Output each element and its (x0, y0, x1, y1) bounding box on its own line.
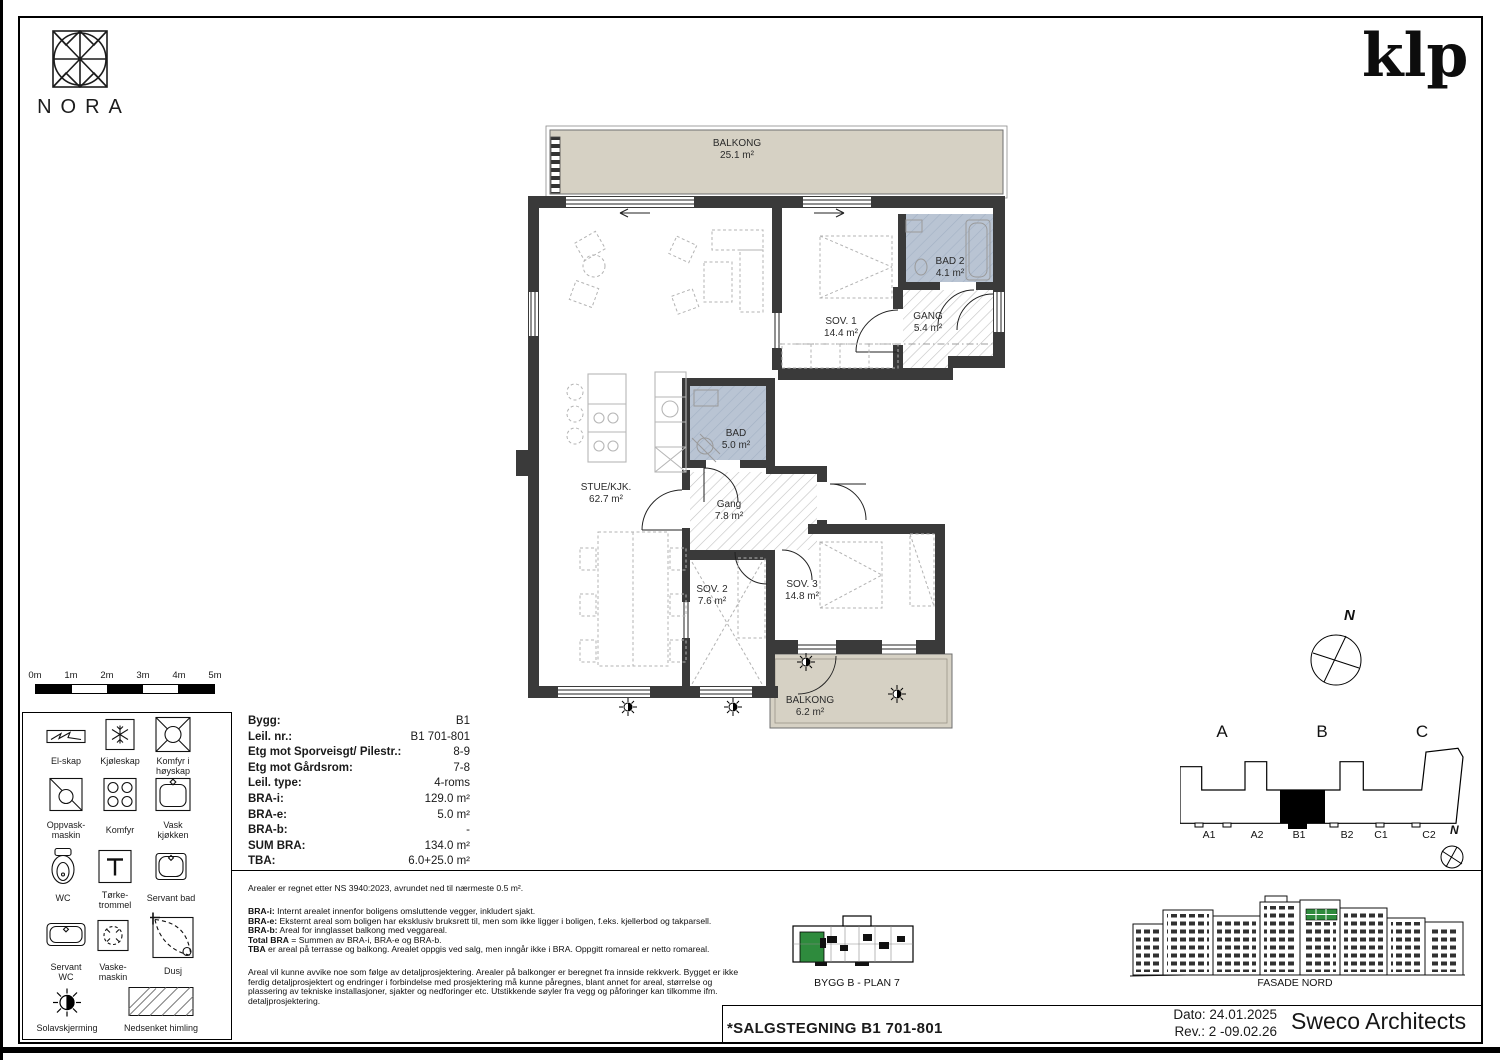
legend-label: Oppvask- maskin (47, 820, 86, 840)
unit-label-b2: B2 (1341, 829, 1354, 841)
info-row: Etg mot Gårdsrom:7-8 (248, 761, 470, 777)
legend-label: Tørke- trommel (99, 890, 132, 910)
north-label-small: N (1450, 823, 1459, 837)
scale-bar-strip (35, 684, 215, 694)
titleblock-vline (722, 1005, 723, 1042)
unit-label-b1: B1 (1293, 829, 1306, 841)
north-label: N (1344, 607, 1355, 624)
legend-label: Vaske- maskin (99, 962, 128, 982)
key-plan-caption: BYGG B - PLAN 7 (814, 977, 900, 989)
kitchen-fixtures (588, 372, 686, 472)
room-label-bad: BAD 5.0 m² (722, 428, 750, 451)
area-notes: Arealer er regnet etter NS 3940:2023, av… (248, 884, 740, 1006)
drawing-sheet: NORA klp (0, 0, 1500, 1060)
facade-drawing (1125, 888, 1470, 980)
servant-wc-icon (45, 922, 87, 953)
slide-arrows (620, 209, 844, 217)
compass-small-icon (1441, 846, 1463, 868)
date-block: Dato: 24.01.2025 Rev.: 2 -09.02.26 (1100, 1006, 1277, 1040)
legend-label: Komfyr (106, 825, 135, 835)
section-label-b: B (1316, 722, 1327, 742)
section-label-c: C (1416, 722, 1428, 742)
legend-label: Nedsenket himling (124, 1023, 198, 1033)
room-label-bad2: BAD 2 4.1 m² (936, 256, 965, 279)
scale-bar: 0m 1m 2m 3m 4m 5m (35, 670, 215, 694)
legend-label: Komfyr i høyskap (156, 756, 190, 776)
info-row: Bygg:B1 (248, 714, 470, 730)
legend-label: Vask kjøkken (157, 820, 188, 840)
servant-bad-icon (153, 850, 189, 889)
room-label-stue: STUE/KJK. 62.7 m² (581, 482, 632, 505)
unit-label-c1: C1 (1374, 829, 1387, 841)
notes-def: TBA er areal på terrasse og balkong. Are… (248, 945, 740, 954)
el-skap-icon (46, 729, 86, 750)
info-row: TBA:6.0+25.0 m² (248, 854, 470, 870)
apartment-info-table: Bygg:B1 Leil. nr.:B1 701-801 Etg mot Spo… (248, 714, 470, 870)
building-key-drawing (1180, 745, 1472, 875)
info-row: BRA-b:- (248, 823, 470, 839)
room-label-sov1: SOV. 1 14.4 m² (824, 316, 858, 339)
balcony-top (546, 126, 1007, 198)
revision-label: Rev.: 2 -09.02.26 (1100, 1023, 1277, 1040)
room-label-balkong-top: BALKONG 25.1 m² (713, 138, 761, 161)
oppvaskmaskin-icon (48, 777, 84, 818)
unit-label-a2: A2 (1251, 829, 1264, 841)
dusj-icon (150, 913, 196, 966)
info-row: BRA-i:129.0 m² (248, 792, 470, 808)
info-row: Leil. type:4-roms (248, 776, 470, 792)
kjoleskap-icon (102, 717, 138, 758)
unit-b1-highlight (1280, 790, 1325, 823)
wc-icon (49, 847, 77, 892)
klp-logo: klp (1362, 24, 1468, 88)
architect-firm: Sweco Architects (1291, 1008, 1466, 1035)
page-edge-bottom (0, 1047, 1500, 1053)
unit-label-c2: C2 (1422, 829, 1435, 841)
legend-label: WC (56, 893, 71, 903)
drawing-title: *SALGSTEGNING B1 701-801 (727, 1020, 943, 1037)
room-label-gang: Gang 7.8 m² (715, 499, 743, 522)
room-label-balkong-bottom: BALKONG 6.2 m² (786, 695, 834, 718)
floor-plan-drawing (505, 110, 1025, 740)
legend-label: Dusj (164, 966, 182, 976)
info-row: BRA-e:5.0 m² (248, 808, 470, 824)
page-edge-left (0, 0, 3, 1060)
compass-icon (1305, 618, 1375, 693)
facade-caption: FASADE NORD (1257, 977, 1332, 989)
notes-intro: Arealer er regnet etter NS 3940:2023, av… (248, 884, 740, 893)
nora-logo-text: NORA (28, 96, 140, 119)
legend-label: Servant bad (147, 893, 196, 903)
legend-label: Servant WC (50, 962, 81, 982)
room-label-sov3: SOV. 3 14.8 m² (785, 579, 819, 602)
info-row: Leil. nr.:B1 701-801 (248, 730, 470, 746)
komfyr-hoyskap-icon (154, 716, 192, 759)
room-label-sov2: SOV. 2 7.6 m² (696, 584, 727, 607)
room-label-gang2: GANG 5.4 m² (913, 311, 942, 334)
komfyr-icon (102, 777, 138, 818)
notes-disclaimer: Areal vil kunne avvike noe som følge av … (248, 968, 740, 1006)
date-label: Dato: 24.01.2025 (1100, 1006, 1277, 1023)
info-row: Etg mot Sporveisgt/ Pilestr.:8-9 (248, 745, 470, 761)
legend-label: Solavskjerming (36, 1023, 97, 1033)
unit-label-a1: A1 (1203, 829, 1216, 841)
legend-label: Kjøleskap (100, 756, 140, 766)
legend-label: El-skap (51, 756, 81, 766)
scale-labels: 0m 1m 2m 3m 4m 5m (35, 670, 215, 682)
vask-kjokken-icon (154, 777, 192, 818)
info-row: SUM BRA:134.0 m² (248, 839, 470, 855)
nedsenket-himling-icon (128, 987, 194, 1022)
section-label-a: A (1216, 722, 1227, 742)
solavskjerming-icon (47, 985, 87, 1026)
vaskemaskin-icon (96, 919, 130, 958)
key-plan-drawing (785, 912, 925, 968)
nora-logo-icon (52, 30, 108, 88)
torketrommel-icon (97, 849, 133, 890)
